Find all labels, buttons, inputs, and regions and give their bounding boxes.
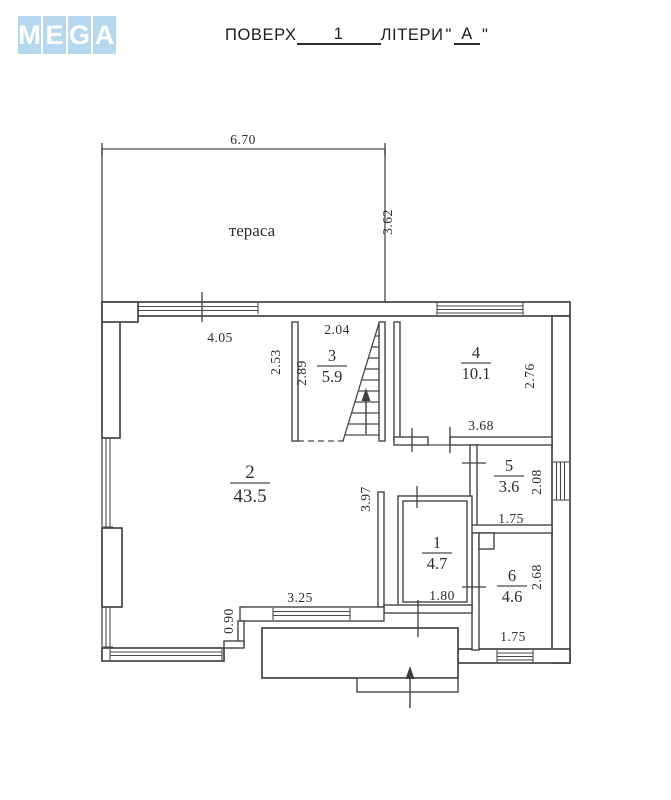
hall-south-wall bbox=[384, 605, 472, 613]
dimension-label-0.90-15: 0.90 bbox=[221, 608, 236, 634]
terrace-outline: тераса bbox=[102, 143, 385, 302]
wall-bottom-left bbox=[102, 648, 224, 661]
room6-corner-notch bbox=[479, 533, 494, 549]
porch-step bbox=[357, 678, 458, 692]
room-area-5: 3.6 bbox=[499, 477, 520, 496]
wall-left-upper bbox=[102, 316, 120, 438]
wall-left-pier bbox=[102, 528, 122, 607]
room5-room6-divider bbox=[470, 525, 552, 533]
room-area-1: 4.7 bbox=[427, 554, 448, 573]
room-area-6: 4.6 bbox=[502, 587, 523, 606]
room6-west-wall bbox=[472, 533, 479, 650]
window-room2-west-lower bbox=[103, 607, 113, 647]
page: M E G A ПОВЕРХ1ЛІТЕРИ"А" тераса bbox=[0, 0, 671, 800]
dimension-label-2.04-3: 2.04 bbox=[324, 322, 350, 337]
labels: 6.703.624.052.042.532.892.763.682.081.75… bbox=[207, 132, 544, 644]
room4-south-wall-b bbox=[450, 437, 552, 445]
stair-arrow-head bbox=[362, 388, 371, 401]
dimension-label-1.75-9: 1.75 bbox=[498, 511, 524, 526]
room-area-4: 10.1 bbox=[462, 364, 491, 383]
dimension-label-2.68-11: 2.68 bbox=[529, 564, 544, 590]
room-number-2: 2 bbox=[245, 462, 255, 483]
dimension-label-1.80-12: 1.80 bbox=[429, 588, 455, 603]
window-room2-west-upper bbox=[103, 438, 113, 527]
room4-south-wall-a bbox=[394, 437, 428, 445]
dimension-label-1.75-13: 1.75 bbox=[500, 629, 526, 644]
dimension-label-4.05-2: 4.05 bbox=[207, 330, 233, 345]
dimension-label-6.70-0: 6.70 bbox=[230, 132, 256, 147]
dimension-label-2.53-4: 2.53 bbox=[268, 349, 283, 375]
dimension-label-2.76-6: 2.76 bbox=[522, 363, 537, 389]
porch-outline bbox=[262, 628, 458, 678]
room-number-5: 5 bbox=[505, 456, 513, 475]
stair-east-wall bbox=[379, 322, 385, 441]
room-number-1: 1 bbox=[433, 533, 441, 552]
terrace-label: тераса bbox=[229, 221, 276, 240]
floor-plan: тераса bbox=[0, 0, 671, 800]
wall-top-left-pier bbox=[102, 302, 138, 322]
room-area-2: 43.5 bbox=[233, 486, 266, 507]
porch bbox=[262, 628, 458, 692]
dimension-label-2.89-5: 2.89 bbox=[294, 360, 309, 386]
dimension-label-2.08-8: 2.08 bbox=[529, 469, 544, 495]
dimension-label-3.97-10: 3.97 bbox=[358, 486, 373, 512]
step-wall-horizontal bbox=[224, 641, 244, 648]
room-number-3: 3 bbox=[328, 346, 336, 365]
stair-diagonal bbox=[343, 323, 379, 441]
room-area-3: 5.9 bbox=[322, 367, 343, 386]
room4-west-wall bbox=[394, 322, 400, 440]
room-number-6: 6 bbox=[508, 566, 516, 585]
dimension-label-3.68-7: 3.68 bbox=[468, 418, 494, 433]
room2-east-wall bbox=[378, 492, 384, 607]
room2-south-wall bbox=[240, 607, 384, 621]
dimension-label-3.25-14: 3.25 bbox=[287, 590, 313, 605]
room-number-4: 4 bbox=[472, 343, 480, 362]
dimension-label-3.62-1: 3.62 bbox=[380, 209, 395, 235]
